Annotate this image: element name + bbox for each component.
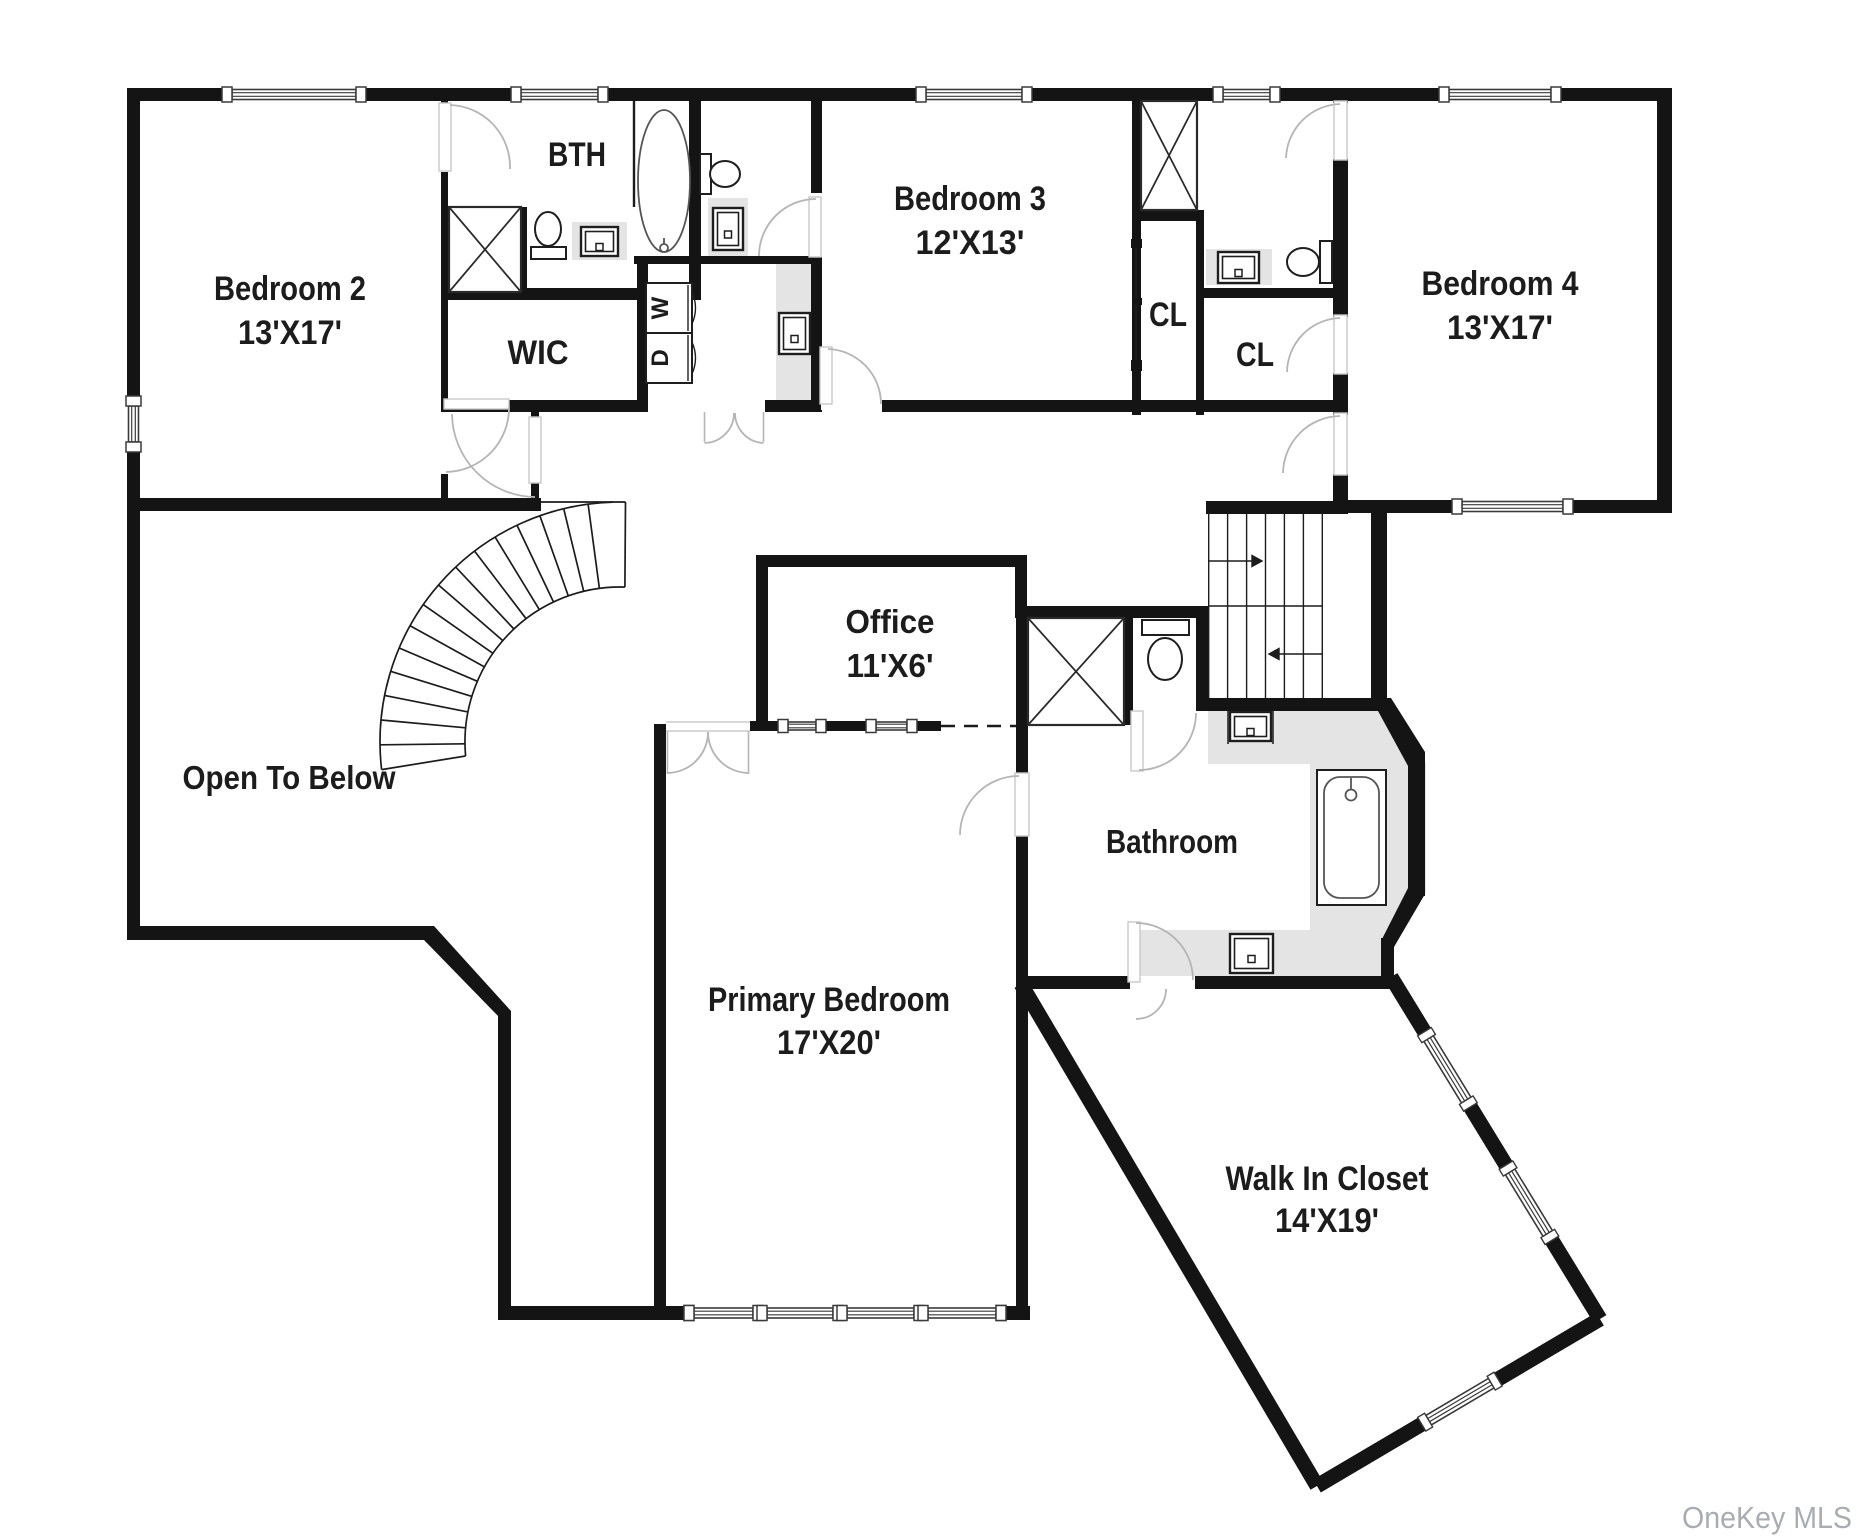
svg-text:13'X17': 13'X17' [1447,309,1553,347]
svg-text:Bedroom 3: Bedroom 3 [894,180,1046,218]
svg-text:BTH: BTH [548,136,606,174]
svg-text:Bedroom 4: Bedroom 4 [1422,265,1579,303]
svg-text:WIC: WIC [508,334,569,372]
svg-text:OneKey MLS: OneKey MLS [1682,1500,1852,1535]
svg-text:Office: Office [846,603,935,640]
svg-text:Bathroom: Bathroom [1106,823,1238,860]
svg-text:CL: CL [1236,336,1274,374]
svg-text:D: D [647,349,674,366]
svg-text:11'X6': 11'X6' [847,647,934,684]
svg-text:Primary Bedroom: Primary Bedroom [708,981,950,1019]
svg-text:Bedroom 2: Bedroom 2 [214,270,366,308]
svg-text:CL: CL [1149,296,1187,334]
svg-text:Open To Below: Open To Below [183,759,396,796]
svg-text:Walk In Closet: Walk In Closet [1226,1160,1429,1198]
svg-text:W: W [647,296,674,319]
svg-text:12'X13': 12'X13' [916,224,1025,262]
svg-text:14'X19': 14'X19' [1275,1202,1379,1240]
svg-text:13'X17': 13'X17' [238,314,342,352]
svg-text:17'X20': 17'X20' [777,1024,881,1062]
